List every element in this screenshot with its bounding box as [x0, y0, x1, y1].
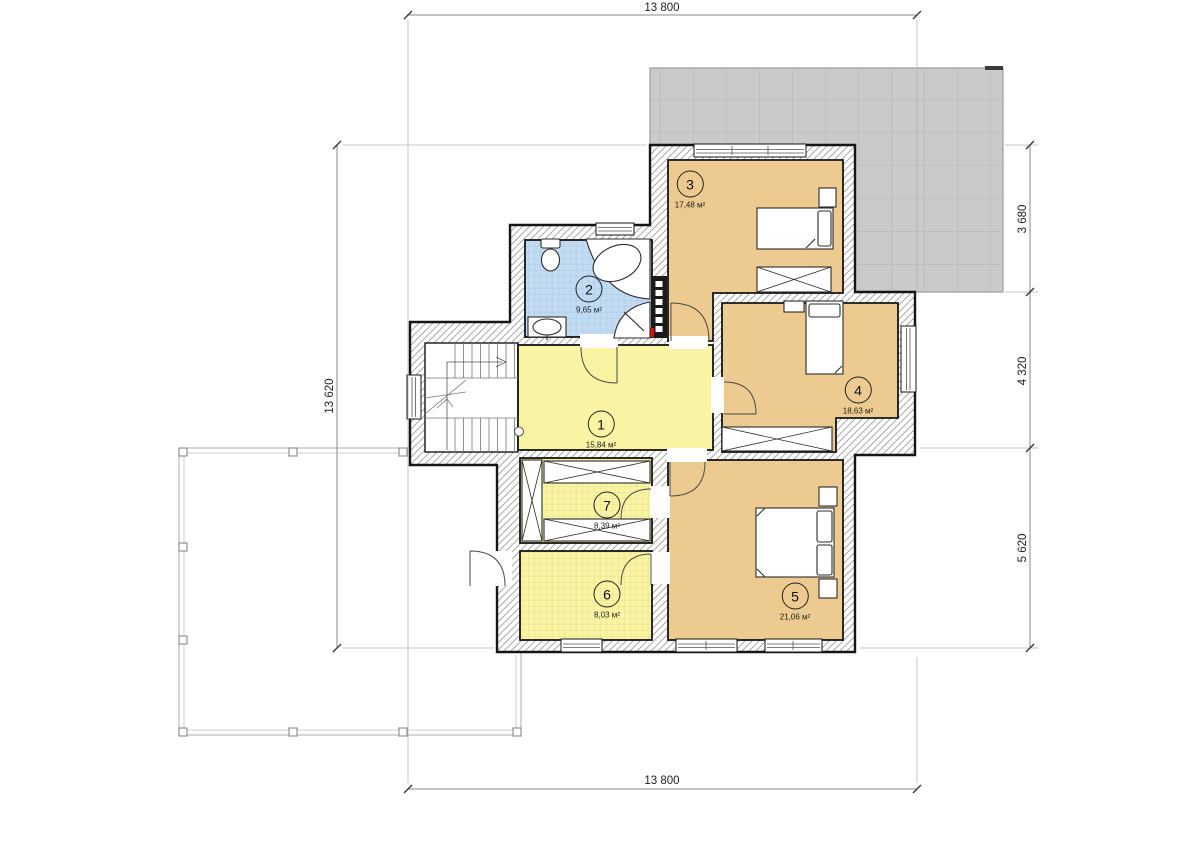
- room-6-floor: [520, 551, 652, 640]
- room-6-area: 8,03 м²: [594, 611, 620, 620]
- room-7-number: 7: [594, 492, 621, 519]
- window-room4-right: [901, 326, 916, 392]
- room-1-area: 15,84 м²: [586, 441, 616, 450]
- room-1-label: 1 15,84 м²: [586, 411, 616, 450]
- dim-top: 13 800: [641, 2, 682, 14]
- dim-left: 13 620: [324, 375, 336, 416]
- window-stairs-left: [407, 375, 421, 419]
- room-5-area: 21,06 м²: [780, 613, 810, 622]
- terrace: [179, 448, 521, 736]
- window-room5-bottom-left: [676, 639, 737, 652]
- room-4-label: 4 18,63 м²: [843, 377, 873, 416]
- room-4-area: 18,63 м²: [843, 407, 873, 416]
- room-5-label: 5 21,06 м²: [780, 583, 810, 622]
- room-3-area: 17,48 м²: [675, 201, 705, 210]
- room-1-number: 1: [588, 411, 615, 438]
- window-room6-bottom: [561, 639, 602, 652]
- room-6-label: 6 8,03 м²: [594, 581, 621, 620]
- dim-right-middle: 4 320: [1017, 354, 1029, 389]
- room-3-label: 3 17,48 м²: [675, 171, 705, 210]
- dim-bottom: 13 800: [641, 775, 682, 787]
- dim-right-bottom: 5 620: [1017, 531, 1029, 566]
- room-2-label: 2 9,65 м²: [576, 276, 603, 315]
- terrace-posts: [179, 448, 521, 736]
- dim-right-top: 3 680: [1017, 202, 1029, 237]
- window-room3-top: [694, 144, 806, 157]
- room3-wardrobe: [757, 267, 831, 292]
- room-3-number: 3: [677, 171, 704, 198]
- room-5-number: 5: [782, 583, 809, 610]
- room-2-area: 9,65 м²: [576, 306, 602, 315]
- window-room5-bottom-right: [765, 639, 822, 652]
- toilet: [541, 239, 560, 271]
- window-bath-top: [596, 223, 634, 235]
- room4-wardrobe: [722, 427, 832, 451]
- room-7-label: 7 8,39 м²: [594, 492, 621, 531]
- stairwell-floor: [425, 343, 518, 452]
- room-6-number: 6: [594, 581, 621, 608]
- floor-plan-canvas: 13 800 13 800 13 620 3 680 4 320 5 620 1…: [0, 0, 1200, 849]
- room-4-number: 4: [845, 377, 872, 404]
- stair-column: [515, 427, 524, 436]
- room-2-number: 2: [576, 276, 603, 303]
- room-7-area: 8,39 м²: [594, 522, 620, 531]
- sink: [528, 317, 566, 340]
